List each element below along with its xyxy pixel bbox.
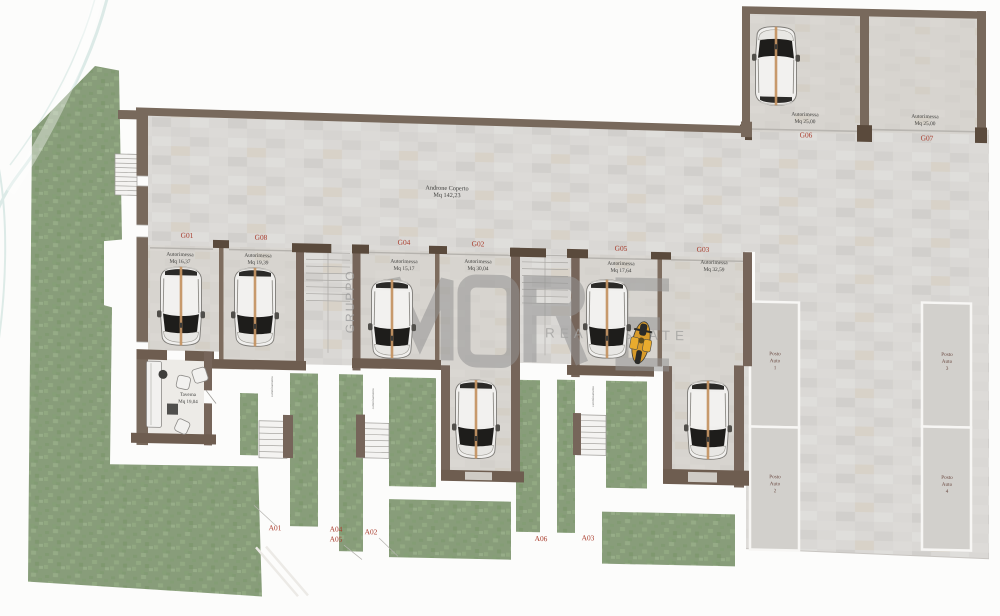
svg-text:Mq 30,04: Mq 30,04 [468,266,489,272]
svg-text:G06: G06 [800,130,813,139]
svg-text:Autorimessa: Autorimessa [166,252,194,259]
svg-text:Auto: Auto [942,359,953,365]
svg-text:Mq 32,59: Mq 32,59 [704,267,725,273]
svg-text:1: 1 [774,365,777,371]
svg-text:Autorimessa: Autorimessa [244,253,272,260]
svg-text:Mq 25,00: Mq 25,00 [795,119,816,125]
svg-text:Auto: Auto [770,358,781,364]
svg-text:Autorimessa: Autorimessa [911,114,939,121]
svg-text:Posto: Posto [769,474,781,480]
svg-text:Autorimessa: Autorimessa [607,261,635,268]
svg-text:camminamento: camminamento [371,388,375,409]
svg-text:Mq 19,04: Mq 19,04 [178,400,198,405]
svg-text:G04: G04 [398,238,411,247]
svg-text:Auto: Auto [942,482,953,488]
svg-text:A04: A04 [330,524,343,533]
svg-text:G05: G05 [615,244,628,253]
svg-text:Mq 142,23: Mq 142,23 [433,192,460,200]
svg-text:GRUPPO: GRUPPO [343,269,357,333]
svg-text:3: 3 [946,366,949,372]
svg-text:2: 2 [774,488,777,494]
svg-text:Mq 19,39: Mq 19,39 [248,260,269,266]
svg-text:G03: G03 [697,245,710,254]
svg-text:G07: G07 [921,133,934,142]
svg-text:G01: G01 [181,231,194,240]
svg-text:Posto: Posto [941,475,953,481]
svg-text:Auto: Auto [770,481,781,487]
svg-text:camminamento: camminamento [591,386,595,407]
svg-text:Autorimessa: Autorimessa [791,112,819,119]
svg-text:Autorimessa: Autorimessa [700,260,728,267]
svg-text:Autorimessa: Autorimessa [464,259,492,266]
svg-text:Mq 17,64: Mq 17,64 [611,268,632,274]
svg-text:A06: A06 [535,534,548,543]
svg-text:Autorimessa: Autorimessa [390,259,418,266]
svg-text:G02: G02 [472,239,485,248]
svg-text:Mq 16,37: Mq 16,37 [170,259,191,265]
svg-text:A02: A02 [365,527,378,536]
svg-text:A05: A05 [330,534,343,543]
svg-text:G08: G08 [255,233,268,242]
svg-text:Mq 15,17: Mq 15,17 [394,266,415,272]
svg-text:A03: A03 [582,533,595,542]
svg-text:camminamento: camminamento [270,376,274,397]
svg-text:4: 4 [946,489,949,495]
svg-text:Taverna: Taverna [180,393,197,398]
svg-text:Posto: Posto [769,351,781,357]
svg-text:Posto: Posto [941,352,953,358]
svg-text:Mq 25,00: Mq 25,00 [915,121,936,127]
